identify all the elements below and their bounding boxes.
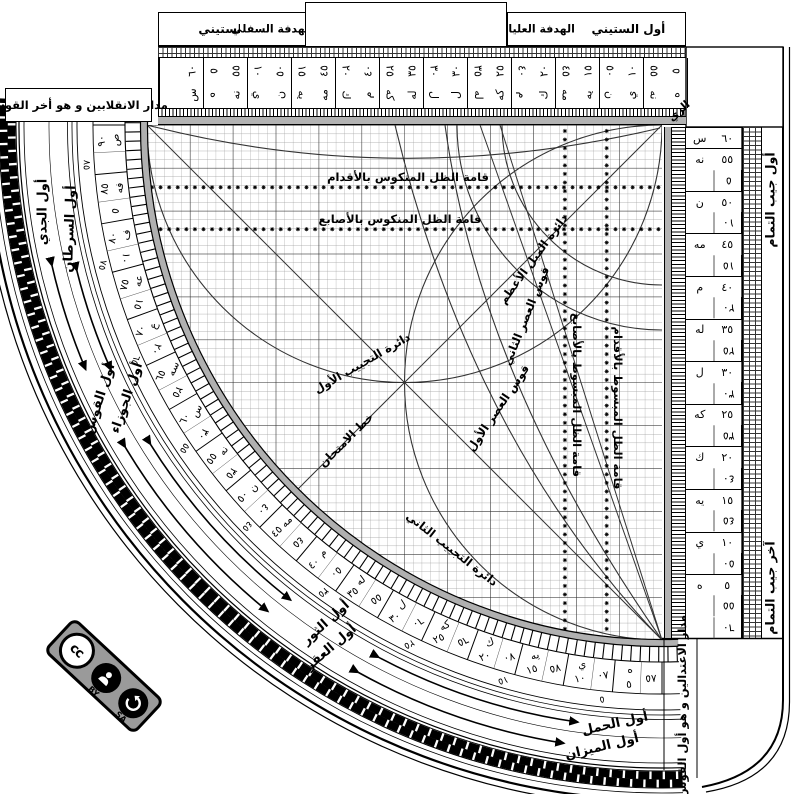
arc-degree-indic: ٣٥	[346, 585, 361, 600]
arc-degree-complement: ٦٥	[455, 634, 470, 648]
arc-degree-abjad: مه	[279, 514, 294, 529]
arc-degree-complement: ٨٥	[645, 673, 657, 684]
arc-degree-abjad: ي	[577, 659, 587, 671]
arc-degree-complement: ٤٥	[290, 534, 305, 549]
arc-degree-indic: ٩٠	[96, 135, 107, 147]
arc-degree-abjad: نه	[217, 444, 230, 457]
arc-inner-ring-number: ٥٥	[177, 441, 190, 455]
arc-degree-abjad: ن	[247, 481, 260, 494]
arc-degree-abjad: عه	[132, 274, 145, 288]
arc-degree-complement: ٤٠	[256, 501, 271, 516]
arc-degree-abjad: م	[317, 547, 329, 559]
arc-degree-complement: ٥٠	[328, 565, 343, 580]
arc-degree-abjad: ف	[121, 229, 133, 241]
arc-inner-ring-number: ٥	[598, 694, 605, 704]
arc-degree-indic: ٣٠	[388, 611, 403, 626]
arc-degree-abjad: ه	[626, 665, 633, 676]
arc-degree-indic: ٥	[625, 679, 632, 690]
arc-degree-abjad: يه	[530, 650, 541, 662]
arc-degree-abjad: ك	[484, 637, 496, 650]
arc-degree-indic: ٧٥	[118, 278, 131, 291]
arc-degree-complement: ١٥	[132, 297, 145, 311]
arc-degree-indic: ٥٠	[235, 489, 250, 504]
arc-inner-ring-number: ٤٥	[240, 519, 254, 533]
arc-degree-abjad: ل	[396, 599, 408, 612]
arc-degree-abjad: ص	[111, 134, 122, 147]
sa-icon: SA	[112, 682, 154, 724]
arc-degree-indic: ٢٥	[432, 632, 447, 646]
arc-degree-abjad: له	[355, 574, 368, 588]
arc-degree-complement: ٧٥	[549, 662, 562, 675]
zodiac-label-outer: أول الجدي	[36, 179, 51, 245]
arc-degree-complement: ٥	[110, 207, 121, 214]
zodiac-label-inner: أول الحمل	[580, 710, 649, 739]
arc-inner-ring-number: ٣٥	[316, 585, 330, 599]
arc-degree-indic: ٤٠	[306, 557, 321, 572]
arc-degree-complement: ٢٠	[149, 342, 163, 356]
arc-degree-abjad: ع	[148, 321, 160, 330]
arc-degree-indic: ٥٥	[205, 452, 220, 467]
zodiac-label-outer: أول الميزان	[564, 731, 641, 763]
zodiac-label-inner: أول السرطان	[61, 186, 79, 274]
arc-inner-ring-number: ٨٥	[82, 160, 92, 170]
arc-degree-complement: ٣٠	[195, 426, 210, 441]
arc-degree-indic: ٨٠	[107, 231, 119, 244]
arc-degree-complement: ٧٠	[501, 650, 515, 664]
cc-icon-text: cc	[67, 640, 87, 660]
arc-degree-indic: ٨٥	[100, 183, 111, 195]
arc-degree-abjad: سه	[166, 361, 181, 378]
arc-inner-ring-number: ١٥	[497, 673, 510, 685]
sine-quadrant-diagram: أخر الستيني الهدفة السفلي الهدفة العليا …	[0, 0, 794, 794]
arc-degree-complement: ٢٥	[170, 385, 184, 400]
arc-degree-complement: ٦٠	[411, 615, 426, 630]
arc-degree-indic: ١٠	[574, 673, 587, 686]
arc-degree-complement: ١٠	[118, 251, 130, 264]
arc-degree-indic: ١٥	[525, 664, 539, 677]
arc-degree-abjad: فه	[114, 182, 125, 193]
arc-degree-indic: ٢٠	[478, 650, 492, 664]
arc-degree-complement: ٥٥	[368, 591, 383, 606]
arc-degree-complement: ٨٠	[597, 669, 610, 681]
arc-inner-ring-number: ٢٥	[402, 637, 416, 650]
arc-degree-complement: ٣٥	[224, 465, 239, 480]
arc-degree-indic: ٧٠	[134, 324, 148, 338]
arc-degree-indic: ٤٥	[269, 525, 284, 540]
arc-inner-ring-number: ٧٥	[96, 259, 107, 271]
